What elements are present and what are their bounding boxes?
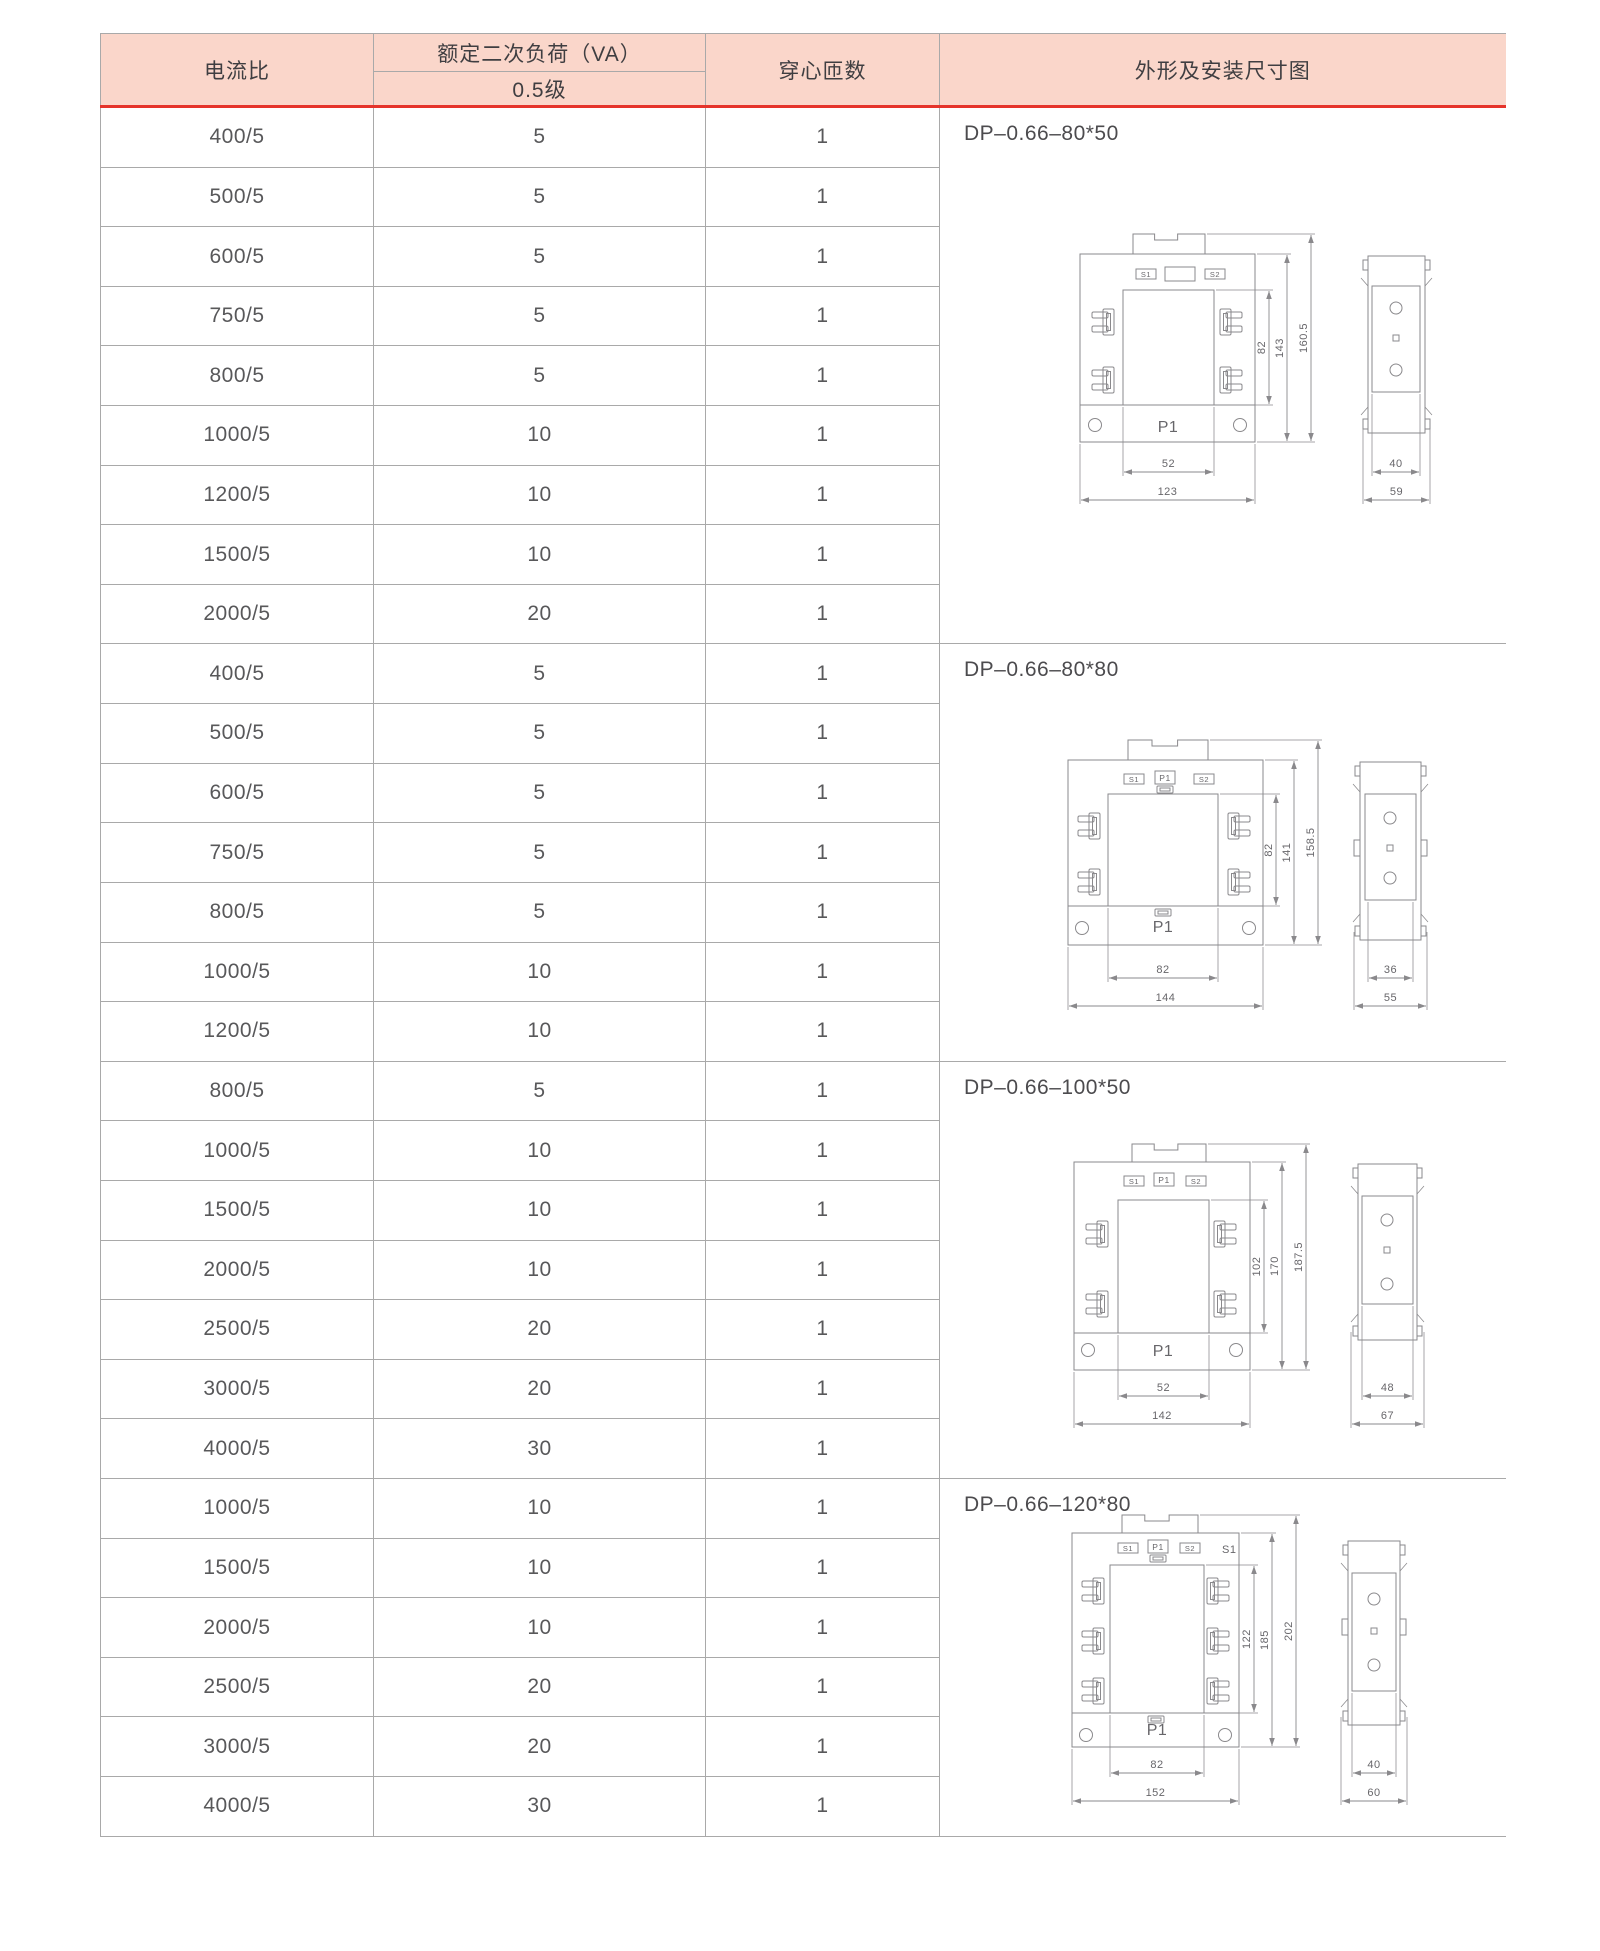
mounting-foot bbox=[1353, 1326, 1358, 1336]
dim-label: 187.5 bbox=[1293, 1242, 1305, 1272]
front-view: S1P1S2P182141158.582144 bbox=[1068, 740, 1322, 1010]
cell-turns: 1 bbox=[706, 882, 940, 942]
cell-current-ratio: 4000/5 bbox=[101, 1777, 374, 1837]
cell-current-ratio: 500/5 bbox=[101, 167, 374, 227]
cell-rated-load: 5 bbox=[374, 763, 706, 823]
cell-rated-load: 5 bbox=[374, 286, 706, 346]
din-rail-tab bbox=[1128, 740, 1208, 760]
dim-label: 52 bbox=[1162, 458, 1175, 470]
terminal-s2-label: S2 bbox=[1185, 1544, 1195, 1553]
cell-turns: 1 bbox=[706, 1777, 940, 1837]
mounting-foot bbox=[1363, 260, 1368, 270]
side-body bbox=[1368, 256, 1425, 433]
terminal-s1-label: S1 bbox=[1129, 775, 1139, 784]
spec-table: 电流比 额定二次负荷（VA） 穿心匝数 外形及安装尺寸图 0.5级 400/55… bbox=[100, 33, 1506, 1837]
cell-current-ratio: 600/5 bbox=[101, 227, 374, 287]
front-view: S1P1S2S1P112218520282152 bbox=[1072, 1515, 1300, 1805]
terminal-s1-label: S1 bbox=[1141, 270, 1151, 279]
header-accuracy-class: 0.5级 bbox=[374, 72, 706, 107]
cell-rated-load: 20 bbox=[374, 1300, 706, 1360]
cell-rated-load: 20 bbox=[374, 1717, 706, 1777]
p1-bottom-label: P1 bbox=[1153, 1343, 1174, 1360]
side-view: 4867 bbox=[1351, 1164, 1424, 1428]
cell-turns: 1 bbox=[706, 525, 940, 585]
diagram-title: DP–0.66–80*80 bbox=[964, 658, 1119, 682]
cell-rated-load: 10 bbox=[374, 1538, 706, 1598]
dim-label: 67 bbox=[1381, 1410, 1394, 1422]
table-row: 400/551DP–0.66–80*50S1S2P182143160.55212… bbox=[101, 107, 1506, 168]
dim-label: 52 bbox=[1157, 1382, 1170, 1394]
outline-drawing: S1S2P182143160.5521234059 bbox=[1068, 220, 1448, 520]
cell-rated-load: 20 bbox=[374, 584, 706, 644]
cell-rated-load: 5 bbox=[374, 644, 706, 704]
cell-rated-load: 5 bbox=[374, 704, 706, 764]
dim-label: 82 bbox=[1156, 964, 1169, 976]
cell-rated-load: 5 bbox=[374, 1061, 706, 1121]
cell-rated-load: 5 bbox=[374, 167, 706, 227]
diagram-cell: DP–0.66–100*50S1P1S2P1102170187.55214248… bbox=[940, 1061, 1506, 1478]
mounting-foot bbox=[1417, 1168, 1422, 1178]
cell-turns: 1 bbox=[706, 1002, 940, 1062]
cell-rated-load: 10 bbox=[374, 1121, 706, 1181]
cell-current-ratio: 1000/5 bbox=[101, 406, 374, 466]
terminal-s2-label: S2 bbox=[1191, 1177, 1201, 1186]
side-panel bbox=[1352, 1573, 1396, 1691]
diagram-title: DP–0.66–80*50 bbox=[964, 122, 1119, 146]
cell-current-ratio: 4000/5 bbox=[101, 1419, 374, 1479]
diagram-cell: DP–0.66–80*80S1P1S2P182141158.5821443655 bbox=[940, 644, 1506, 1061]
cell-turns: 1 bbox=[706, 1419, 940, 1479]
terminal-mid-block bbox=[1165, 267, 1195, 281]
cell-turns: 1 bbox=[706, 942, 940, 1002]
cell-rated-load: 5 bbox=[374, 227, 706, 287]
din-rail-tab bbox=[1133, 234, 1205, 254]
cell-turns: 1 bbox=[706, 286, 940, 346]
terminal-p1-label: P1 bbox=[1152, 1542, 1163, 1552]
cell-rated-load: 10 bbox=[374, 1598, 706, 1658]
cell-current-ratio: 1200/5 bbox=[101, 1002, 374, 1062]
diagram-cell: DP–0.66–80*50S1S2P182143160.5521234059 bbox=[940, 107, 1506, 644]
cell-turns: 1 bbox=[706, 1240, 940, 1300]
side-view: 3655 bbox=[1353, 762, 1428, 1010]
mounting-hole bbox=[1082, 1343, 1095, 1356]
cell-rated-load: 5 bbox=[374, 107, 706, 168]
cell-rated-load: 30 bbox=[374, 1777, 706, 1837]
p1-bottom-label: P1 bbox=[1147, 1722, 1168, 1739]
cell-turns: 1 bbox=[706, 1300, 940, 1360]
header-drawing: 外形及安装尺寸图 bbox=[940, 34, 1506, 107]
front-view: S1S2P182143160.552123 bbox=[1080, 234, 1315, 504]
cell-turns: 1 bbox=[706, 1180, 940, 1240]
dim-label: 143 bbox=[1274, 338, 1286, 358]
terminal-s2-label: S2 bbox=[1199, 775, 1209, 784]
dim-label: 160.5 bbox=[1298, 323, 1310, 353]
table-row: 400/551DP–0.66–80*80S1P1S2P182141158.582… bbox=[101, 644, 1506, 704]
cell-turns: 1 bbox=[706, 1061, 940, 1121]
mounting-foot bbox=[1421, 926, 1426, 936]
mounting-hole bbox=[1080, 1729, 1093, 1742]
dim-label: 202 bbox=[1283, 1621, 1295, 1641]
table-header: 电流比 额定二次负荷（VA） 穿心匝数 外形及安装尺寸图 0.5级 bbox=[101, 34, 1506, 107]
cell-current-ratio: 2000/5 bbox=[101, 584, 374, 644]
dim-label: 82 bbox=[1150, 1759, 1163, 1771]
terminal-p1-label: P1 bbox=[1159, 773, 1170, 783]
mounting-foot bbox=[1355, 926, 1360, 936]
mounting-foot bbox=[1353, 1168, 1358, 1178]
cell-current-ratio: 800/5 bbox=[101, 346, 374, 406]
cell-rated-load: 20 bbox=[374, 1359, 706, 1419]
p1-bottom-label: P1 bbox=[1153, 919, 1174, 936]
cell-turns: 1 bbox=[706, 1479, 940, 1539]
dim-label: 60 bbox=[1367, 1787, 1380, 1799]
cell-rated-load: 10 bbox=[374, 1002, 706, 1062]
mounting-hole bbox=[1234, 419, 1247, 432]
cell-turns: 1 bbox=[706, 644, 940, 704]
cell-rated-load: 5 bbox=[374, 346, 706, 406]
cell-turns: 1 bbox=[706, 346, 940, 406]
mounting-foot bbox=[1400, 1545, 1405, 1555]
outline-drawing: S1P1S2S1P1122185202821524060 bbox=[1062, 1507, 1442, 1819]
mounting-hole bbox=[1076, 922, 1089, 935]
cell-current-ratio: 1500/5 bbox=[101, 1180, 374, 1240]
terminal-p1-label: P1 bbox=[1158, 1175, 1169, 1185]
mounting-foot bbox=[1355, 766, 1360, 776]
cell-turns: 1 bbox=[706, 1598, 940, 1658]
table-row: 800/551DP–0.66–100*50S1P1S2P1102170187.5… bbox=[101, 1061, 1506, 1121]
dim-label: 40 bbox=[1367, 1759, 1380, 1771]
catalog-page: 电流比 额定二次负荷（VA） 穿心匝数 外形及安装尺寸图 0.5级 400/55… bbox=[0, 0, 1600, 1951]
cell-turns: 1 bbox=[706, 584, 940, 644]
cell-current-ratio: 2000/5 bbox=[101, 1240, 374, 1300]
dim-label: 48 bbox=[1381, 1382, 1394, 1394]
cell-current-ratio: 1200/5 bbox=[101, 465, 374, 525]
cell-rated-load: 5 bbox=[374, 823, 706, 883]
cell-current-ratio: 2000/5 bbox=[101, 1598, 374, 1658]
cell-turns: 1 bbox=[706, 704, 940, 764]
cell-current-ratio: 400/5 bbox=[101, 644, 374, 704]
front-body bbox=[1074, 1162, 1250, 1370]
dim-label: 144 bbox=[1156, 992, 1176, 1004]
diagram-cell: DP–0.66–120*80S1P1S2S1P11221852028215240… bbox=[940, 1479, 1506, 1837]
core-window bbox=[1118, 1200, 1209, 1333]
cell-current-ratio: 2500/5 bbox=[101, 1657, 374, 1717]
cell-current-ratio: 750/5 bbox=[101, 823, 374, 883]
cell-turns: 1 bbox=[706, 227, 940, 287]
cell-current-ratio: 400/5 bbox=[101, 107, 374, 168]
dim-label: 141 bbox=[1281, 843, 1293, 863]
cell-current-ratio: 3000/5 bbox=[101, 1359, 374, 1419]
cell-turns: 1 bbox=[706, 1538, 940, 1598]
mounting-foot bbox=[1343, 1545, 1348, 1555]
cell-rated-load: 10 bbox=[374, 1180, 706, 1240]
dim-label: 123 bbox=[1158, 486, 1178, 498]
dim-label: 185 bbox=[1259, 1630, 1271, 1650]
cell-rated-load: 10 bbox=[374, 1479, 706, 1539]
mounting-foot bbox=[1417, 1326, 1422, 1336]
dim-label: 82 bbox=[1256, 341, 1268, 354]
cell-rated-load: 10 bbox=[374, 942, 706, 1002]
cell-rated-load: 10 bbox=[374, 406, 706, 466]
diagram-title: DP–0.66–100*50 bbox=[964, 1076, 1131, 1100]
mounting-hole bbox=[1230, 1343, 1243, 1356]
mounting-foot bbox=[1343, 1711, 1348, 1721]
mounting-hole bbox=[1219, 1729, 1232, 1742]
dim-label: 40 bbox=[1389, 458, 1402, 470]
p1-bottom-label: P1 bbox=[1158, 419, 1179, 436]
dim-label: 59 bbox=[1390, 486, 1403, 498]
outline-drawing: S1P1S2P182141158.5821443655 bbox=[1060, 732, 1440, 1032]
cell-turns: 1 bbox=[706, 167, 940, 227]
mounting-foot bbox=[1363, 419, 1368, 429]
dim-label: 158.5 bbox=[1305, 828, 1317, 858]
cell-current-ratio: 2500/5 bbox=[101, 1300, 374, 1360]
cell-turns: 1 bbox=[706, 1717, 940, 1777]
cell-rated-load: 10 bbox=[374, 525, 706, 585]
core-window bbox=[1123, 290, 1214, 405]
cell-current-ratio: 750/5 bbox=[101, 286, 374, 346]
front-body bbox=[1080, 254, 1255, 442]
header-current-ratio: 电流比 bbox=[101, 34, 374, 107]
cell-current-ratio: 1000/5 bbox=[101, 942, 374, 1002]
table-body: 400/551DP–0.66–80*50S1S2P182143160.55212… bbox=[101, 107, 1506, 1837]
header-rated-load: 额定二次负荷（VA） bbox=[374, 34, 706, 72]
cell-current-ratio: 1000/5 bbox=[101, 1479, 374, 1539]
side-panel bbox=[1362, 1196, 1413, 1304]
cell-rated-load: 10 bbox=[374, 1240, 706, 1300]
dim-label: 55 bbox=[1384, 992, 1397, 1004]
dim-label: 82 bbox=[1263, 844, 1275, 857]
dim-label: 142 bbox=[1152, 1410, 1172, 1422]
mounting-hole bbox=[1243, 922, 1256, 935]
dim-label: 102 bbox=[1251, 1256, 1263, 1276]
corner-s1-label: S1 bbox=[1222, 1544, 1236, 1556]
mounting-hole bbox=[1089, 419, 1102, 432]
side-view: 4059 bbox=[1361, 256, 1432, 504]
outline-drawing: S1P1S2P1102170187.5521424867 bbox=[1060, 1138, 1440, 1448]
cell-current-ratio: 1000/5 bbox=[101, 1121, 374, 1181]
mounting-foot bbox=[1425, 419, 1430, 429]
cell-turns: 1 bbox=[706, 763, 940, 823]
cell-turns: 1 bbox=[706, 107, 940, 168]
side-body bbox=[1358, 1164, 1417, 1340]
cell-turns: 1 bbox=[706, 1121, 940, 1181]
dim-label: 152 bbox=[1146, 1787, 1166, 1799]
cell-current-ratio: 3000/5 bbox=[101, 1717, 374, 1777]
din-rail-tab bbox=[1132, 1144, 1206, 1162]
cell-current-ratio: 600/5 bbox=[101, 763, 374, 823]
cell-rated-load: 20 bbox=[374, 1657, 706, 1717]
core-window bbox=[1110, 1565, 1204, 1713]
cell-current-ratio: 1500/5 bbox=[101, 525, 374, 585]
table-row: 1000/5101DP–0.66–120*80S1P1S2S1P11221852… bbox=[101, 1479, 1506, 1539]
cell-current-ratio: 1500/5 bbox=[101, 1538, 374, 1598]
front-view: S1P1S2P1102170187.552142 bbox=[1074, 1144, 1310, 1428]
terminal-s2-label: S2 bbox=[1210, 270, 1220, 279]
cell-rated-load: 30 bbox=[374, 1419, 706, 1479]
cell-rated-load: 10 bbox=[374, 465, 706, 525]
mounting-foot bbox=[1425, 260, 1430, 270]
terminal-s1-label: S1 bbox=[1129, 1177, 1139, 1186]
header-turns: 穿心匝数 bbox=[706, 34, 940, 107]
cell-turns: 1 bbox=[706, 1657, 940, 1717]
dim-label: 170 bbox=[1269, 1256, 1281, 1276]
cell-turns: 1 bbox=[706, 465, 940, 525]
cell-current-ratio: 800/5 bbox=[101, 1061, 374, 1121]
core-window bbox=[1108, 794, 1218, 906]
cell-current-ratio: 500/5 bbox=[101, 704, 374, 764]
cell-turns: 1 bbox=[706, 1359, 940, 1419]
side-body bbox=[1348, 1541, 1400, 1725]
cell-turns: 1 bbox=[706, 406, 940, 466]
cell-rated-load: 5 bbox=[374, 882, 706, 942]
mounting-foot bbox=[1421, 766, 1426, 776]
cell-current-ratio: 800/5 bbox=[101, 882, 374, 942]
din-rail-tab bbox=[1122, 1515, 1198, 1533]
dim-label: 122 bbox=[1241, 1629, 1253, 1649]
cell-turns: 1 bbox=[706, 823, 940, 883]
dim-label: 36 bbox=[1384, 964, 1397, 976]
mounting-foot bbox=[1400, 1711, 1405, 1721]
side-view: 4060 bbox=[1341, 1541, 1407, 1805]
terminal-s1-label: S1 bbox=[1123, 1544, 1133, 1553]
